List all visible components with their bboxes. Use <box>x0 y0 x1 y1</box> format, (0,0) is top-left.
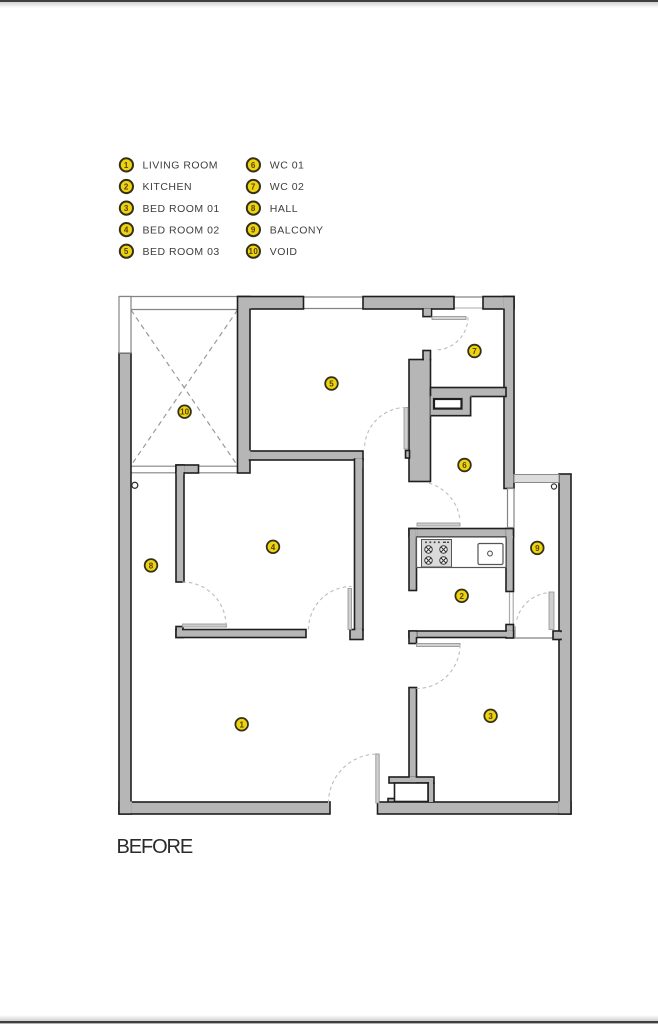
svg-text:2: 2 <box>124 183 129 192</box>
svg-text:3: 3 <box>124 204 129 213</box>
svg-text:6: 6 <box>251 161 256 170</box>
svg-text:WC 02: WC 02 <box>270 181 305 193</box>
svg-text:5: 5 <box>124 247 129 256</box>
svg-text:LIVING ROOM: LIVING ROOM <box>143 160 219 172</box>
svg-text:2: 2 <box>459 592 464 601</box>
svg-text:VOID: VOID <box>270 246 298 258</box>
svg-text:6: 6 <box>462 461 467 470</box>
svg-text:BED ROOM 02: BED ROOM 02 <box>143 224 220 236</box>
svg-text:7: 7 <box>251 183 256 192</box>
svg-text:BED ROOM 01: BED ROOM 01 <box>143 203 220 215</box>
svg-text:HALL: HALL <box>270 203 298 215</box>
svg-text:9: 9 <box>251 226 256 235</box>
svg-text:5: 5 <box>329 380 334 389</box>
svg-text:4: 4 <box>124 226 129 235</box>
svg-text:10: 10 <box>248 247 258 256</box>
svg-text:WC 01: WC 01 <box>270 160 305 172</box>
svg-text:7: 7 <box>472 347 477 356</box>
svg-text:9: 9 <box>535 544 540 553</box>
svg-text:BEFORE: BEFORE <box>117 836 193 858</box>
svg-text:8: 8 <box>251 204 256 213</box>
svg-text:BED ROOM 03: BED ROOM 03 <box>143 246 220 258</box>
svg-text:4: 4 <box>271 543 276 552</box>
svg-text:KITCHEN: KITCHEN <box>143 181 193 193</box>
svg-text:1: 1 <box>124 161 129 170</box>
svg-text:8: 8 <box>149 561 154 570</box>
svg-text:10: 10 <box>180 408 189 417</box>
svg-text:3: 3 <box>488 712 493 721</box>
svg-text:BALCONY: BALCONY <box>270 224 324 236</box>
svg-text:1: 1 <box>239 720 244 729</box>
